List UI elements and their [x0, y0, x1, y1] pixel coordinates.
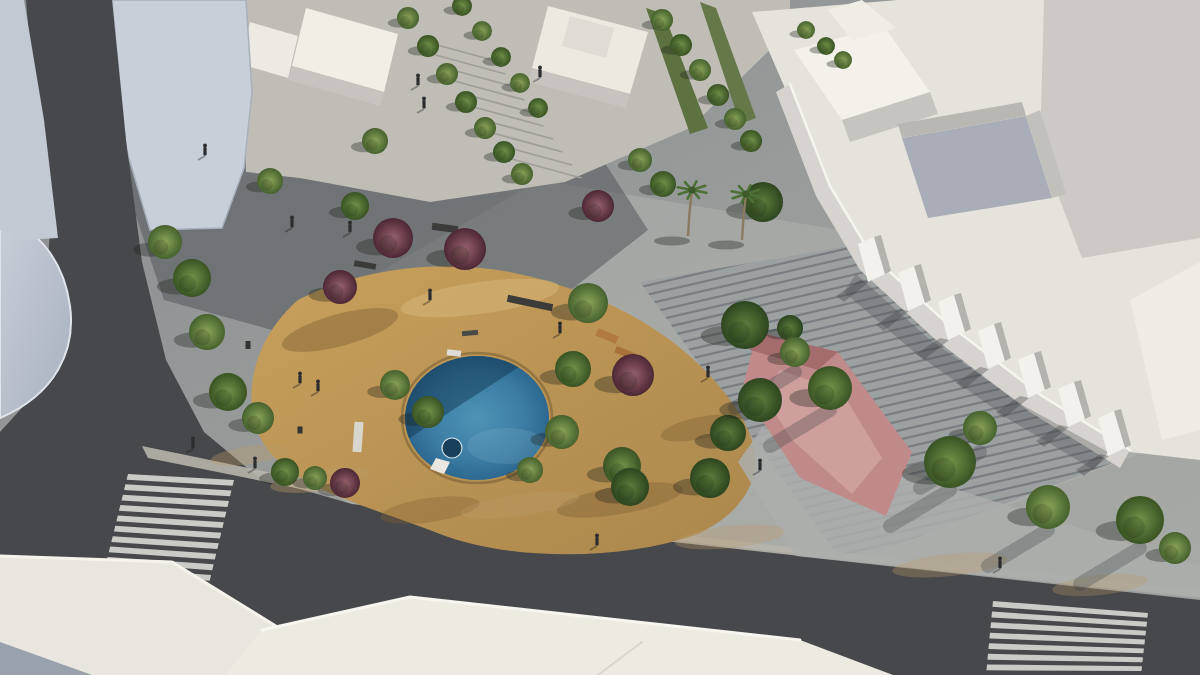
pedestrian [538, 69, 541, 78]
pedestrian [416, 77, 419, 86]
pedestrian [298, 375, 301, 384]
pedestrian [253, 460, 256, 469]
pedestrian [998, 560, 1001, 569]
pedestrian [595, 537, 598, 546]
pedestrian [191, 440, 194, 449]
bench [246, 341, 251, 349]
aerial-render-image [0, 0, 1200, 675]
pedestrian [706, 369, 709, 378]
pedestrian [758, 462, 761, 471]
pedestrian [348, 224, 351, 233]
pedestrian [290, 219, 293, 228]
pedestrian [422, 100, 425, 109]
pedestrian [203, 147, 206, 156]
pedestrian [428, 292, 431, 301]
scene-svg [0, 0, 1200, 675]
palm-crown [689, 187, 696, 194]
palm-crown [743, 191, 750, 198]
pedestrian [316, 383, 319, 392]
bench [298, 427, 303, 434]
fountain [442, 438, 462, 458]
pedestrian [558, 325, 561, 334]
